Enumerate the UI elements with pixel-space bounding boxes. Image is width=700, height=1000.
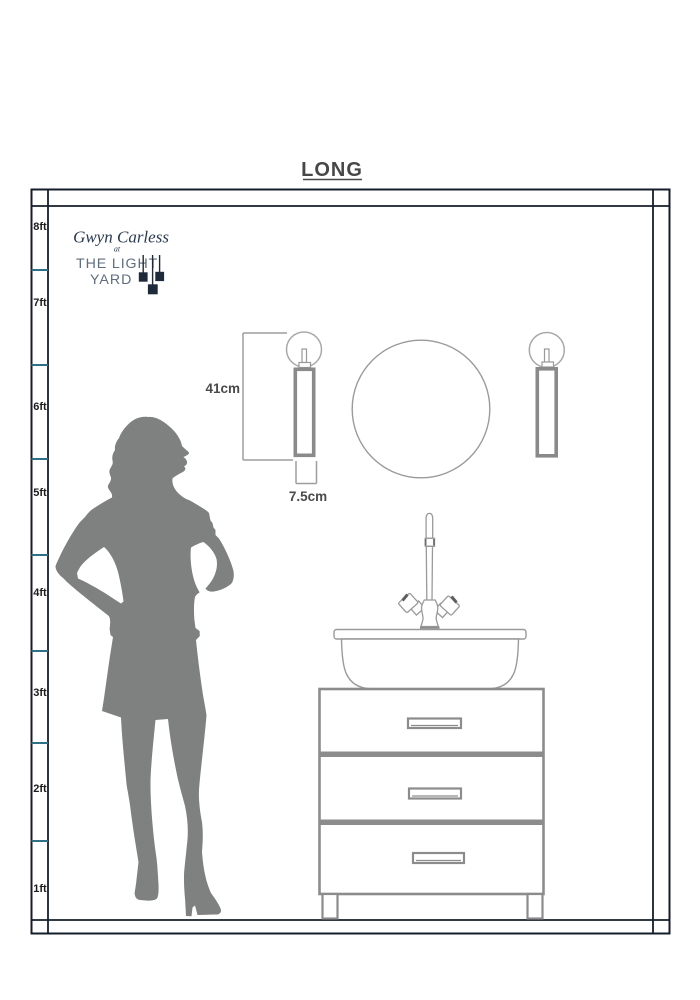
svg-text:LONG: LONG	[301, 159, 363, 181]
svg-text:41cm: 41cm	[205, 381, 240, 396]
svg-text:at: at	[114, 245, 121, 254]
svg-text:YARD: YARD	[90, 272, 132, 288]
svg-text:7ft: 7ft	[33, 297, 47, 309]
svg-text:THE LIGHT: THE LIGHT	[76, 256, 158, 272]
svg-text:5ft: 5ft	[33, 487, 47, 499]
svg-text:6ft: 6ft	[33, 401, 47, 413]
svg-text:8ft: 8ft	[33, 221, 47, 233]
svg-text:4ft: 4ft	[33, 587, 47, 599]
svg-text:3ft: 3ft	[33, 687, 47, 699]
svg-text:7.5cm: 7.5cm	[289, 489, 327, 504]
svg-text:2ft: 2ft	[33, 783, 47, 795]
svg-text:1ft: 1ft	[33, 883, 47, 895]
svg-text:Gwyn Carless: Gwyn Carless	[73, 228, 169, 247]
